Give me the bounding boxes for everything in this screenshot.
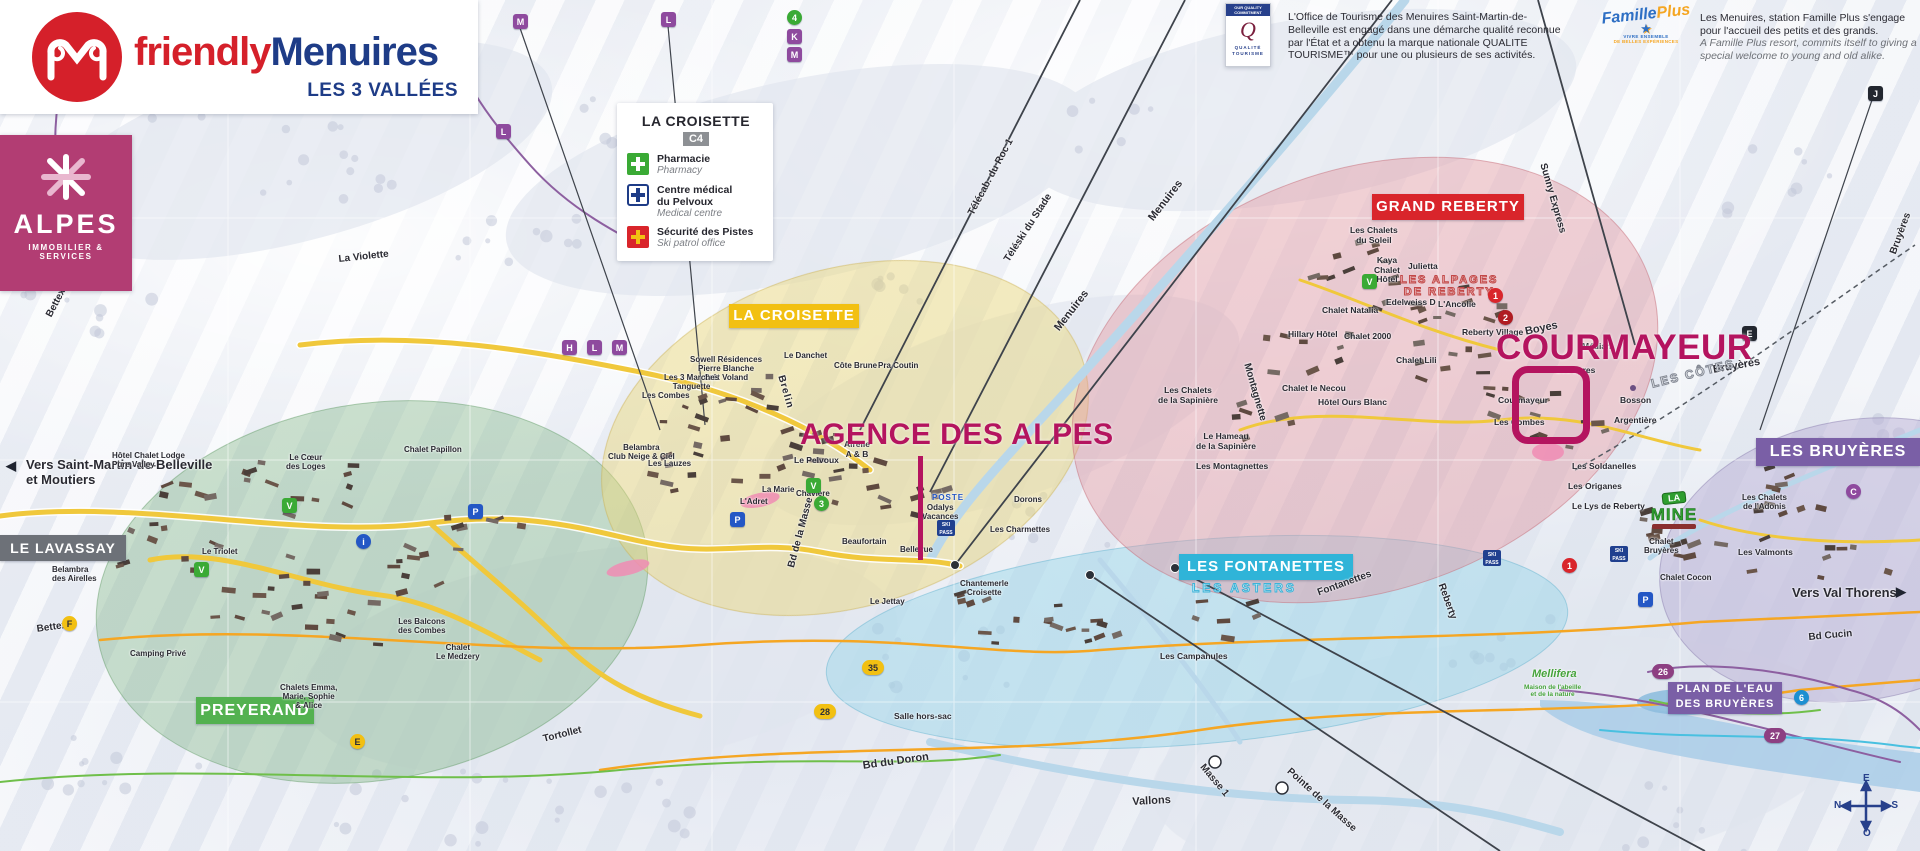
map-label: Le Triolet bbox=[202, 548, 238, 557]
map-label: Les Combes bbox=[642, 392, 690, 401]
map-label: Chalets Emma, Marie, Sophie & Alice bbox=[280, 684, 337, 711]
map-label: Vallons bbox=[1132, 794, 1171, 808]
map-label: Chalet le Necou bbox=[1282, 384, 1346, 394]
medical-cross-icon bbox=[627, 184, 649, 206]
map-label: Pra Coutin bbox=[878, 362, 918, 371]
legend-item-pharmacy: Pharmacie Pharmacy bbox=[627, 153, 765, 177]
route-badge: E bbox=[350, 734, 365, 749]
map-label: Les Balcons des Combes bbox=[398, 618, 446, 636]
legend-label-en: Ski patrol office bbox=[657, 238, 753, 250]
la-mine-logo: LA MINE bbox=[1642, 488, 1706, 529]
menuires-logo-icon bbox=[32, 12, 122, 102]
famille-text-en: A Famille Plus resort, commits itself to… bbox=[1700, 37, 1917, 62]
map-label: LES ALPAGES DE REBERTY bbox=[1400, 274, 1498, 299]
qualite-logo-top-text: OUR QUALITY COMMITMENT bbox=[1226, 4, 1270, 16]
route-badge: L bbox=[587, 340, 602, 355]
qualite-logo-name-2: TOURISME bbox=[1226, 51, 1270, 57]
famille-logo-sub2: DE BELLES EXPÉRIENCES bbox=[1600, 39, 1692, 44]
map-label: Le Lys de Reberty bbox=[1572, 502, 1645, 512]
route-badge: L bbox=[496, 124, 511, 139]
route-badge: 35 bbox=[862, 660, 884, 675]
map-label: La Marie bbox=[762, 486, 794, 495]
map-label: Chalet Papillon bbox=[404, 446, 462, 455]
map-label: Chalet Bruyères bbox=[1644, 538, 1679, 556]
qualite-tourisme-logo: OUR QUALITY COMMITMENT Q QUALITÉ TOURISM… bbox=[1225, 3, 1271, 67]
logo-menuires: Menuires bbox=[270, 30, 438, 74]
resort-map: LA CROISETTEGRAND REBERTYLES FONTANETTES… bbox=[0, 0, 1920, 851]
route-badge: M bbox=[787, 47, 802, 62]
map-label: Kaya Chalet Hôtel bbox=[1374, 256, 1400, 285]
route-badge: L bbox=[661, 12, 676, 27]
map-label: Chalet Cocon bbox=[1660, 574, 1712, 583]
map-label: Le Cœur des Loges bbox=[286, 454, 326, 472]
ski-pass-badge: SKIPASS bbox=[937, 520, 955, 536]
map-label: Côte Brune bbox=[834, 362, 877, 371]
route-badge: V bbox=[806, 478, 821, 493]
pharmacy-cross-icon bbox=[627, 153, 649, 175]
map-label: Le Pelvoux bbox=[794, 456, 839, 466]
route-badge: M bbox=[513, 14, 528, 29]
map-label: Bellevue bbox=[900, 546, 933, 555]
map-label: Camping Privé bbox=[130, 650, 186, 659]
legend-label-fr: Centre médical du Pelvoux bbox=[657, 184, 732, 208]
map-label: Hillary Hôtel bbox=[1288, 330, 1338, 340]
map-label: Les Charmettes bbox=[990, 526, 1050, 535]
alpes-agency-card: ALPES IMMOBILIER & SERVICES bbox=[0, 135, 132, 291]
map-label: Bosson bbox=[1620, 396, 1651, 406]
legend-label-fr: Pharmacie bbox=[657, 153, 710, 165]
district-chip: LE LAVASSAY bbox=[0, 535, 126, 561]
ski-pass-badge: SKIPASS bbox=[1610, 546, 1628, 562]
legend-label-fr: Sécurité des Pistes bbox=[657, 226, 753, 238]
map-label: POSTE bbox=[932, 494, 964, 503]
route-badge: 1 bbox=[1562, 558, 1577, 573]
route-badge: 4 bbox=[787, 10, 802, 25]
map-label: Beaufortain bbox=[842, 538, 886, 547]
alpes-snowflake-icon bbox=[34, 149, 98, 205]
agence-pointer-line bbox=[918, 456, 923, 560]
map-label: Le Jettay bbox=[870, 598, 905, 607]
map-label: Maison de l'abeille et de la nature bbox=[1524, 684, 1581, 699]
map-label: Les Origanes bbox=[1568, 482, 1622, 492]
map-label: L'Ancolie bbox=[1438, 300, 1476, 310]
route-badge: K bbox=[787, 29, 802, 44]
courmayeur-label: COURMAYEUR bbox=[1496, 328, 1753, 368]
qualite-tourisme-text: L'Office de Tourisme des Menuires Saint-… bbox=[1288, 11, 1568, 62]
district-chip: GRAND REBERTY bbox=[1372, 194, 1524, 220]
map-label: Le Danchet bbox=[784, 352, 827, 361]
route-badge: P bbox=[1638, 592, 1653, 607]
famille-plus-logo: FamillePlus ★ VIVRE ENSEMBLE DE BELLES E… bbox=[1600, 6, 1692, 68]
map-label: Vers Val Thorens bbox=[1792, 586, 1897, 601]
compass-left: N bbox=[1834, 800, 1841, 811]
map-label: Chalet Natalia bbox=[1322, 306, 1378, 316]
logo-wordmark: friendlyMenuires bbox=[134, 30, 438, 75]
famille-logo-plus: Plus bbox=[1656, 1, 1691, 21]
district-chip: LES FONTANETTES bbox=[1179, 554, 1353, 580]
map-label: L'Adret bbox=[740, 498, 768, 507]
route-badge: 2 bbox=[1498, 310, 1513, 325]
route-badge: P bbox=[730, 512, 745, 527]
map-label: Le Hameau de la Sapinière bbox=[1196, 432, 1256, 451]
compass: E S O N bbox=[1836, 776, 1896, 836]
logo-tagline: LES 3 VALLÉES bbox=[134, 80, 458, 102]
legend-grid-ref: C4 bbox=[683, 132, 709, 146]
map-label: Hôtel Chalet Lodge Pure Valley bbox=[112, 452, 185, 470]
route-badge: 6 bbox=[1794, 690, 1809, 705]
route-badge: F bbox=[62, 616, 77, 631]
la-mine-logo-band bbox=[1652, 524, 1696, 529]
route-badge: 1 bbox=[1488, 288, 1503, 303]
map-label: Les Valmonts bbox=[1738, 548, 1793, 558]
map-label: Julietta bbox=[1408, 262, 1438, 272]
district-chip: LA CROISETTE bbox=[729, 304, 859, 328]
route-badge: H bbox=[562, 340, 577, 355]
map-label: Dorons bbox=[1014, 496, 1042, 505]
map-label: Les Chalets du Soleil bbox=[1350, 226, 1398, 245]
route-badge: M bbox=[612, 340, 627, 355]
map-label: Chalet Le Medzery bbox=[436, 644, 480, 662]
route-badge: 28 bbox=[814, 704, 836, 719]
route-badge: C bbox=[1846, 484, 1861, 499]
route-badge: 3 bbox=[814, 496, 829, 511]
route-badge: J bbox=[1868, 86, 1883, 101]
courmayeur-highlight-box bbox=[1512, 366, 1590, 444]
map-label: Chalet Lili bbox=[1396, 356, 1437, 366]
route-badge: i bbox=[356, 534, 371, 549]
map-label: Salle hors-sac bbox=[894, 712, 952, 722]
ski-pass-badge: SKIPASS bbox=[1483, 550, 1501, 566]
map-label: Les Soldanelles bbox=[1572, 462, 1636, 472]
agence-des-alpes-label: AGENCE DES ALPES bbox=[800, 418, 1114, 452]
legend-label-en: Medical centre bbox=[657, 208, 732, 220]
famille-text-fr: Les Menuires, station Famille Plus s'eng… bbox=[1700, 12, 1905, 37]
legend-card: LA CROISETTE C4 Pharmacie Pharmacy Centr… bbox=[617, 103, 773, 261]
alpes-subtitle: IMMOBILIER & SERVICES bbox=[0, 243, 132, 261]
legend-label-en: Pharmacy bbox=[657, 165, 710, 177]
friendly-menuires-logo-card: friendlyMenuires LES 3 VALLÉES bbox=[0, 0, 478, 114]
map-label: Chantemerle Croisette bbox=[960, 580, 1008, 598]
la-mine-logo-text: MINE bbox=[1642, 506, 1706, 523]
route-badge: P bbox=[468, 504, 483, 519]
compass-icon bbox=[1836, 776, 1896, 836]
route-badge: 27 bbox=[1764, 728, 1786, 743]
legend-item-ski-patrol: Sécurité des Pistes Ski patrol office bbox=[627, 226, 765, 250]
direction-arrow-icon: ◀ bbox=[6, 458, 16, 474]
qualite-q-icon: Q bbox=[1226, 16, 1270, 45]
direction-arrow-icon: ▶ bbox=[1896, 584, 1906, 600]
legend-title: LA CROISETTE bbox=[627, 113, 765, 129]
route-badge: V bbox=[1362, 274, 1377, 289]
ski-patrol-cross-icon bbox=[627, 226, 649, 248]
district-chip: LES BRUYÈRES bbox=[1756, 438, 1920, 466]
map-label: Argentière bbox=[1614, 416, 1657, 426]
la-mine-logo-top: LA bbox=[1661, 491, 1686, 505]
compass-right: S bbox=[1891, 800, 1898, 811]
map-label: Les 3 Marches Tanguette bbox=[664, 374, 719, 392]
map-label: Mellifera bbox=[1532, 668, 1577, 680]
map-label: Les Lauzes bbox=[648, 460, 691, 469]
map-label: Les Campanules bbox=[1160, 652, 1228, 662]
logo-friendly: friendly bbox=[134, 30, 270, 74]
route-badge: V bbox=[194, 562, 209, 577]
legend-item-medical: Centre médical du Pelvoux Medical centre bbox=[627, 184, 765, 220]
compass-bottom: O bbox=[1863, 828, 1871, 839]
map-label: Les Chalets de l'Adonis bbox=[1742, 494, 1787, 512]
alpes-name: ALPES bbox=[0, 211, 132, 238]
route-badge: 26 bbox=[1652, 664, 1674, 679]
district-chip: PLAN DE L'EAU DES BRUYÈRES bbox=[1668, 682, 1782, 714]
map-label: Chalet 2000 bbox=[1344, 332, 1391, 342]
map-label: Belambra des Airelles bbox=[52, 566, 97, 584]
compass-top: E bbox=[1863, 773, 1870, 784]
map-label: Hôtel Ours Blanc bbox=[1318, 398, 1387, 408]
route-badge: V bbox=[282, 498, 297, 513]
map-label: Les Montagnettes bbox=[1196, 462, 1268, 472]
map-label: Edelweiss D bbox=[1386, 298, 1436, 308]
famille-plus-text: Les Menuires, station Famille Plus s'eng… bbox=[1700, 12, 1918, 62]
map-label: LES ASTERS bbox=[1192, 582, 1297, 595]
map-label: Les Chalets de la Sapinière bbox=[1158, 386, 1218, 405]
